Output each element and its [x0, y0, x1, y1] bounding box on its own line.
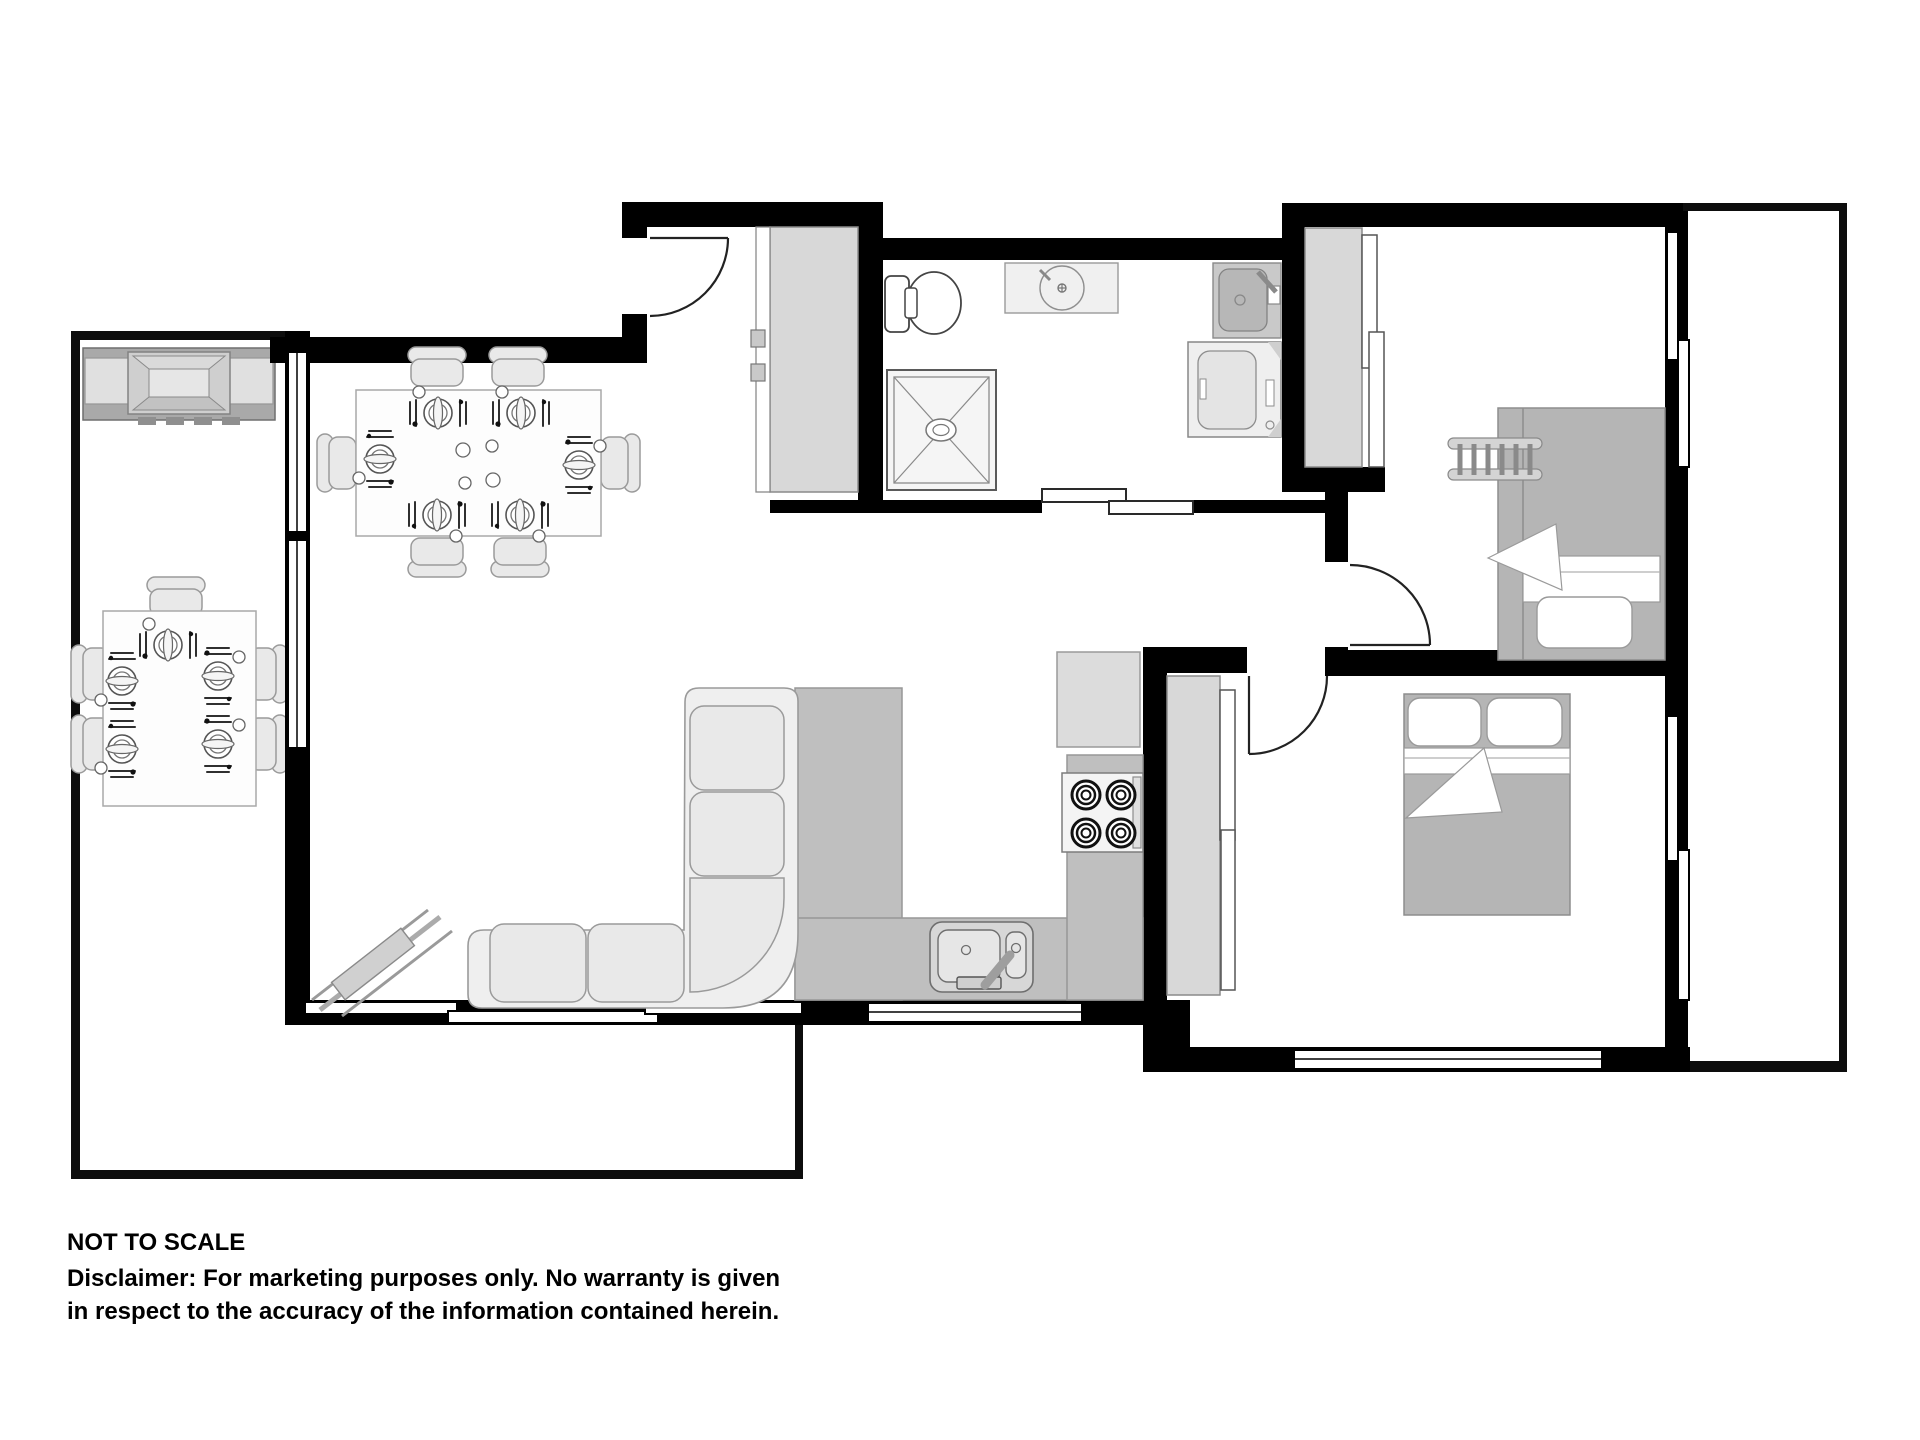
kitchen-window: [868, 1003, 1082, 1022]
bunk-ladder: [1448, 438, 1542, 480]
outdoor-dining-table: [71, 577, 288, 806]
wardrobe-handle: [751, 364, 765, 381]
dining-chair: [491, 538, 549, 577]
living-room: [312, 688, 798, 1016]
pillow: [1537, 597, 1632, 648]
bbq-grill: [83, 348, 275, 425]
double-bed: [1404, 694, 1570, 915]
fridge: [1057, 652, 1140, 747]
floor-plan-page: NOT TO SCALE Disclaimer: For marketing p…: [0, 0, 1920, 1440]
bedroom1-wardrobe: [1305, 228, 1362, 467]
bedroom-2: [1167, 676, 1570, 995]
washing-machine: [1188, 342, 1281, 437]
bathroom-sliding-door: [1042, 489, 1193, 514]
plan-notes: NOT TO SCALE Disclaimer: For marketing p…: [67, 1229, 780, 1325]
vanity-basin: [1005, 263, 1118, 313]
kitchen-sink: [930, 922, 1033, 992]
dining-chair: [489, 347, 547, 386]
entry-door: [650, 238, 728, 316]
pillow: [1408, 698, 1481, 746]
tv-screen: [332, 928, 415, 1000]
bathroom: [885, 263, 1281, 490]
dining-chair: [408, 538, 466, 577]
dining-chair: [317, 434, 356, 492]
wardrobe-door-panel: [1369, 332, 1384, 467]
corner-sofa: [468, 688, 798, 1008]
dining-table-group: [317, 347, 640, 577]
toilet: [885, 272, 961, 334]
robe-door-panel: [1221, 830, 1235, 990]
robe-door-panel: [1220, 690, 1235, 840]
bedroom1-door: [1350, 565, 1430, 645]
scale-note: NOT TO SCALE: [67, 1229, 245, 1256]
pillow: [1487, 698, 1562, 746]
courtyard-outline: [1683, 203, 1847, 1072]
outdoor-chair: [147, 577, 205, 616]
floor-plan-svg: NOT TO SCALE Disclaimer: For marketing p…: [0, 0, 1920, 1440]
bedroom2-robe: [1167, 676, 1220, 995]
dining-chair: [601, 434, 640, 492]
living-left-window: [288, 352, 307, 748]
entry-wardrobe: [751, 227, 858, 492]
shower-drain: [926, 419, 956, 441]
bedroom2-door: [1249, 676, 1327, 754]
bedroom2-bottom-window: [1294, 1050, 1602, 1069]
disclaimer-line-2: in respect to the accuracy of the inform…: [67, 1298, 779, 1325]
wardrobe-handle: [751, 330, 765, 347]
bedroom-1: [1305, 228, 1665, 660]
cooktop: [1062, 773, 1143, 852]
shower: [887, 370, 996, 490]
disclaimer-line-1: Disclaimer: For marketing purposes only.…: [67, 1265, 780, 1292]
laundry-trough: [1213, 263, 1281, 338]
kitchen: [795, 652, 1143, 1000]
dining-chair: [408, 347, 466, 386]
